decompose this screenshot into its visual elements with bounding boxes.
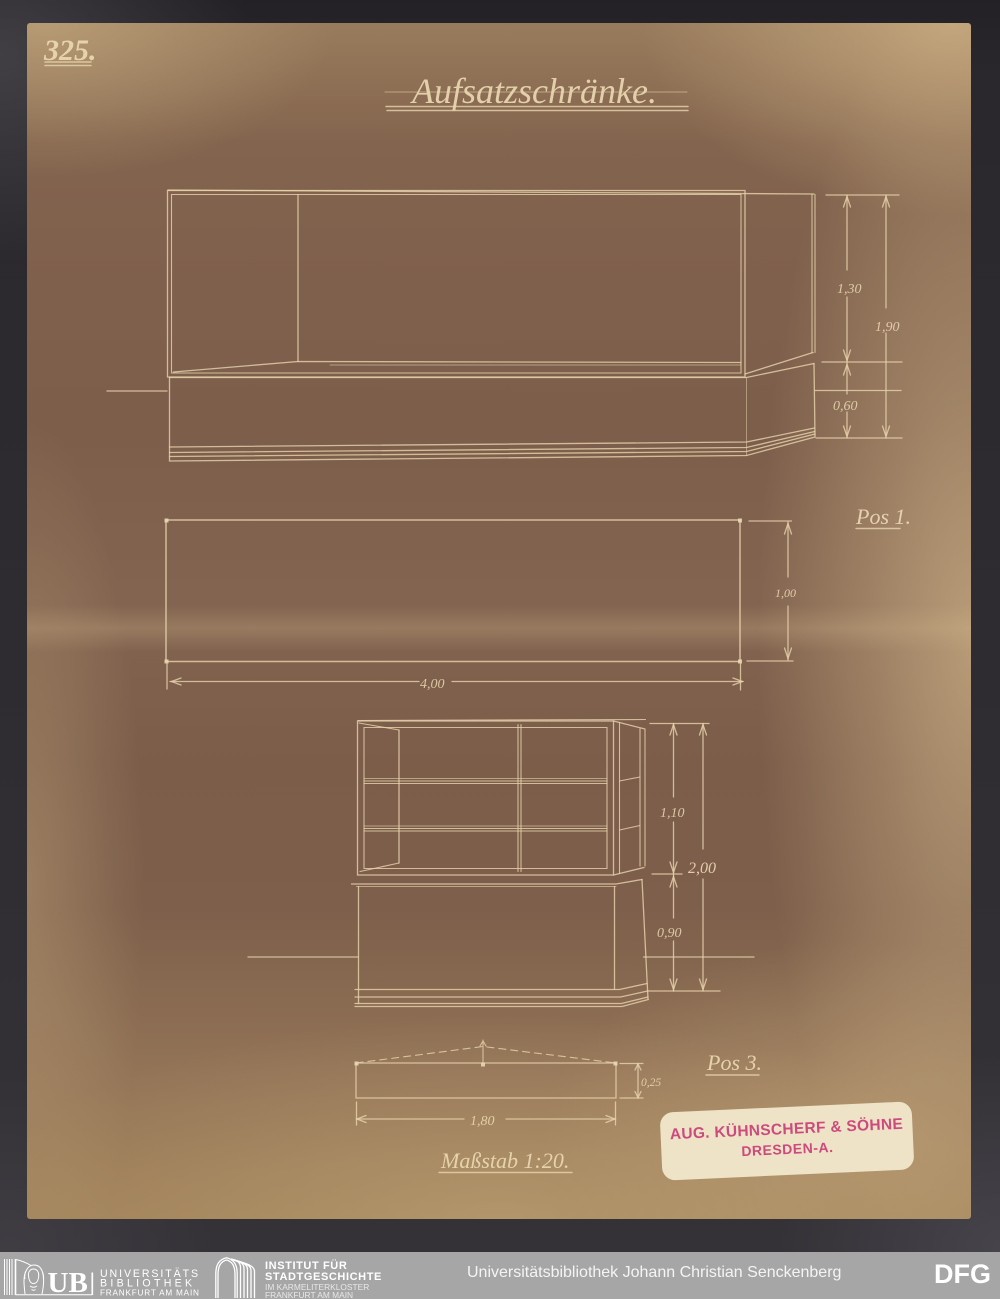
svg-text:DFG: DFG: [934, 1259, 991, 1289]
svg-text:1,00: 1,00: [775, 586, 796, 600]
svg-text:Universitätsbibliothek Johann: Universitätsbibliothek Johann Christian …: [467, 1264, 841, 1281]
svg-text:4,00: 4,00: [420, 677, 445, 692]
svg-text:1,10: 1,10: [660, 806, 685, 821]
svg-text:Aufsatzschränke.: Aufsatzschränke.: [410, 71, 657, 111]
svg-text:FRANKFURT AM MAIN: FRANKFURT AM MAIN: [265, 1290, 353, 1299]
svg-text:2,00: 2,00: [688, 860, 716, 877]
svg-text:1,30: 1,30: [837, 282, 862, 297]
svg-text:1,80: 1,80: [470, 1114, 495, 1129]
svg-text:Maßstab 1:20.: Maßstab 1:20.: [440, 1148, 569, 1173]
svg-text:1,90: 1,90: [875, 320, 900, 335]
svg-text:0,90: 0,90: [657, 926, 682, 941]
svg-text:UB: UB: [48, 1267, 88, 1299]
svg-text:0,60: 0,60: [833, 399, 858, 414]
svg-text:FRANKFURT AM MAIN: FRANKFURT AM MAIN: [100, 1289, 200, 1298]
svg-text:Pos 1.: Pos 1.: [855, 504, 911, 529]
svg-text:Pos 3.: Pos 3.: [706, 1050, 762, 1075]
svg-text:0,25: 0,25: [641, 1077, 661, 1089]
